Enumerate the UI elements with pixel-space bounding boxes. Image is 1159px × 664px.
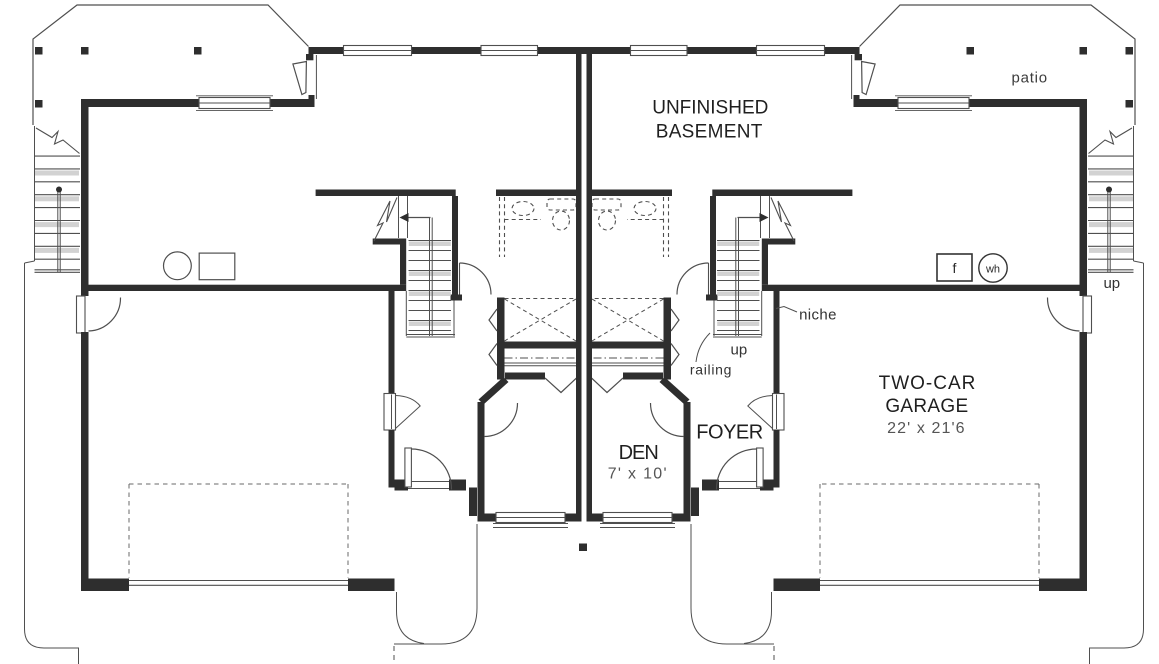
- svg-text:FOYER: FOYER: [696, 422, 762, 444]
- svg-text:DEN: DEN: [619, 442, 658, 464]
- svg-text:patio: patio: [1012, 70, 1048, 87]
- svg-text:7' x 10': 7' x 10': [608, 466, 668, 483]
- svg-text:wh: wh: [985, 264, 1000, 276]
- svg-text:UNFINISHED: UNFINISHED: [652, 98, 768, 119]
- svg-text:22' x 21'6: 22' x 21'6: [887, 420, 966, 437]
- svg-text:niche: niche: [799, 307, 837, 324]
- svg-text:TWO-CAR: TWO-CAR: [879, 373, 977, 394]
- svg-text:up: up: [1103, 275, 1120, 292]
- svg-text:railing: railing: [690, 362, 732, 378]
- svg-text:GARAGE: GARAGE: [885, 396, 968, 417]
- svg-text:BASEMENT: BASEMENT: [656, 122, 763, 143]
- svg-text:f: f: [953, 260, 957, 276]
- svg-text:up: up: [731, 342, 748, 359]
